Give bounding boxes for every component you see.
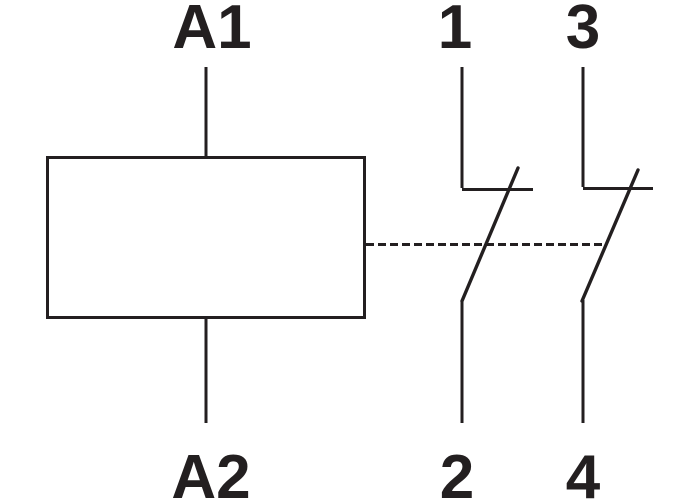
schematic-canvas: A1 A2 1 2 3 4 bbox=[0, 0, 700, 500]
contactor-schematic: A1 A2 1 2 3 4 bbox=[0, 0, 700, 500]
coil-terminal-a1-label: A1 bbox=[172, 0, 251, 62]
contact-1-2-group: 1 2 bbox=[438, 0, 533, 500]
contact-1-moving-arm bbox=[462, 168, 518, 301]
contact-terminal-3-label: 3 bbox=[566, 0, 600, 62]
contact-terminal-4-label: 4 bbox=[566, 443, 601, 500]
coil-body bbox=[48, 158, 365, 318]
coil-group: A1 A2 bbox=[48, 0, 365, 500]
coil-terminal-a2-label: A2 bbox=[171, 443, 250, 500]
contact-terminal-1-label: 1 bbox=[438, 0, 472, 62]
contact-terminal-2-label: 2 bbox=[440, 443, 474, 500]
contact-3-4-group: 3 4 bbox=[566, 0, 653, 500]
